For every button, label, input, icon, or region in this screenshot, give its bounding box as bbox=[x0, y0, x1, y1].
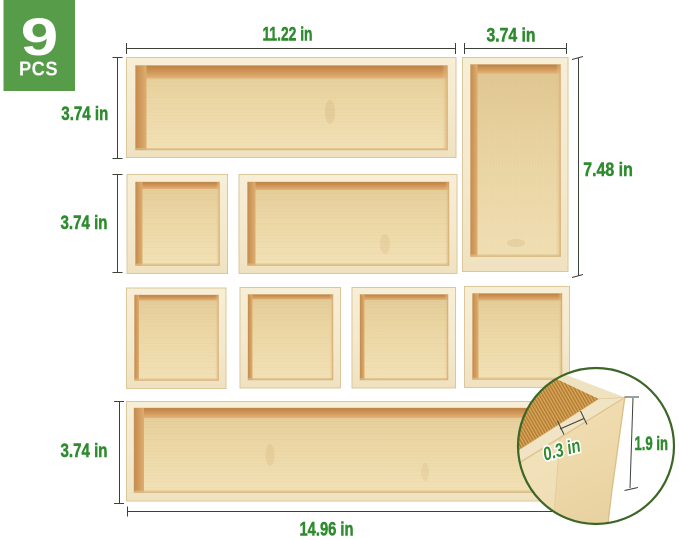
svg-text:1.9 in: 1.9 in bbox=[635, 434, 669, 455]
svg-text:3.74 in: 3.74 in bbox=[61, 213, 108, 234]
svg-text:3.74 in: 3.74 in bbox=[61, 104, 108, 125]
svg-text:3.74 in: 3.74 in bbox=[487, 26, 536, 47]
svg-text:7.48 in: 7.48 in bbox=[583, 160, 633, 181]
svg-text:PCS: PCS bbox=[19, 58, 58, 81]
svg-text:11.22 in: 11.22 in bbox=[263, 25, 313, 46]
svg-text:3.74 in: 3.74 in bbox=[61, 441, 108, 462]
svg-text:14.96 in: 14.96 in bbox=[300, 520, 354, 540]
